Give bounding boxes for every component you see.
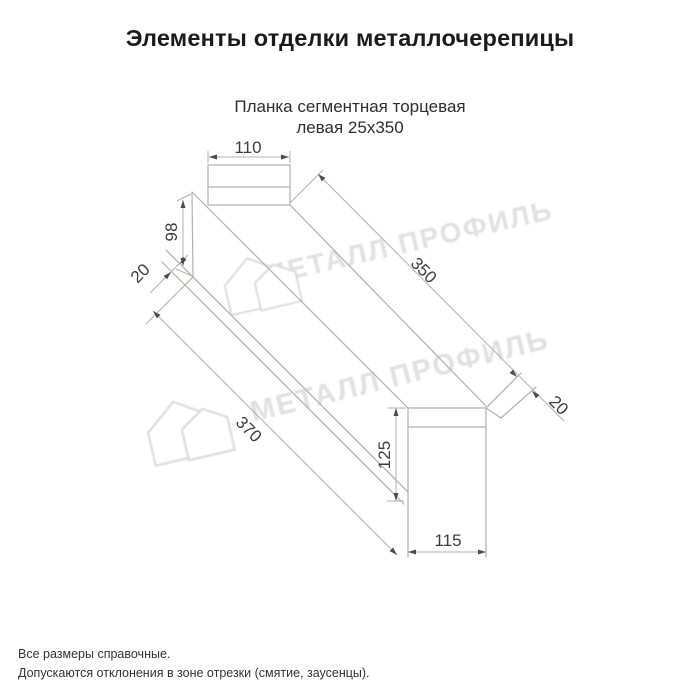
footer-notes: Все размеры справочные. Допускаются откл…: [18, 645, 370, 683]
footer-note-2: Допускаются отклонения в зоне отрезки (с…: [18, 664, 370, 683]
profile-outline: [162, 165, 536, 557]
dim-left-height-label: 98: [162, 223, 181, 242]
drawing-page: Элементы отделки металлочерепицы Планка …: [0, 0, 700, 700]
dim-right-height-label: 125: [375, 441, 394, 469]
dim-bottom-width-label: 115: [434, 531, 461, 550]
house-logo-icon-upper: [220, 248, 302, 317]
dim-left-hem-label: 20: [127, 260, 154, 287]
house-logo-icon-lower: [143, 391, 235, 468]
footer-note-1: Все размеры справочные.: [18, 645, 370, 664]
dimension-lines: [146, 151, 564, 555]
dimension-arrows: [153, 155, 539, 556]
left-end-face: [208, 165, 290, 205]
technical-drawing-svg: 110 98 20 350 370 20 125 115: [0, 0, 700, 700]
dim-top-width-label: 110: [234, 138, 261, 157]
dim-right-hem-label: 20: [545, 392, 572, 419]
dim-bottom-length-label: 370: [232, 413, 265, 446]
dim-top-length-label: 350: [407, 254, 440, 287]
